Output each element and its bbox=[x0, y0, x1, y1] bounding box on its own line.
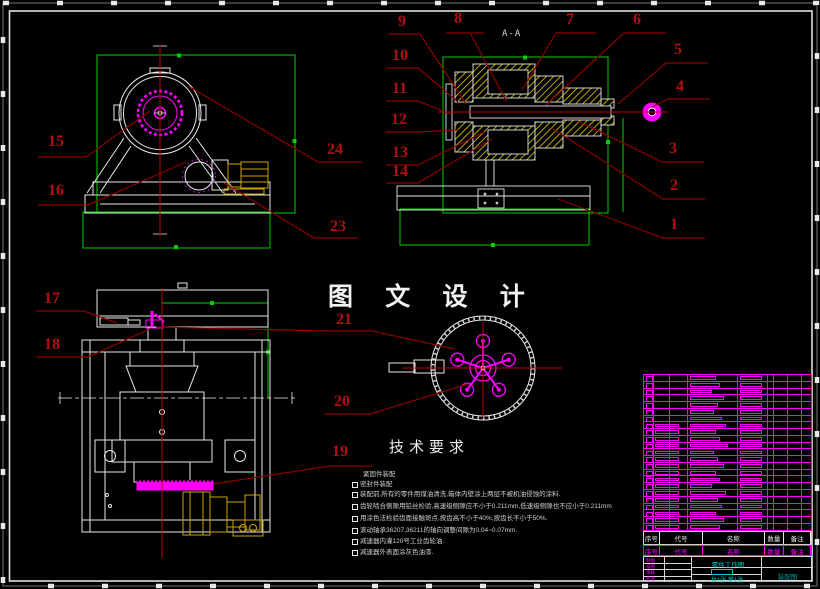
bom-row bbox=[644, 483, 811, 490]
green-boxes[interactable] bbox=[83, 54, 623, 399]
callout-2[interactable]: 2 bbox=[670, 178, 678, 194]
bom-row bbox=[644, 517, 811, 524]
bom-header-cell: 代号 bbox=[660, 532, 703, 544]
sheet-info: 共1张 第1张 bbox=[694, 575, 760, 584]
callout-23[interactable]: 23 bbox=[330, 219, 346, 235]
bom-header-cell: 名称 bbox=[703, 546, 764, 555]
bom-header-cell: 名称 bbox=[703, 532, 764, 544]
bom-row bbox=[644, 449, 811, 456]
front-view[interactable] bbox=[85, 46, 270, 234]
side-view[interactable] bbox=[58, 283, 295, 536]
tb-label-1: 制图 bbox=[646, 558, 655, 564]
callout-3[interactable]: 3 bbox=[669, 141, 677, 157]
bom-row bbox=[644, 389, 811, 396]
callout-9[interactable]: 9 bbox=[398, 14, 406, 30]
bom-row bbox=[644, 436, 811, 443]
bom-row bbox=[644, 504, 811, 511]
bom-table[interactable]: 序号代号名称数量备注 序号代号名称数量备注 制图 描图 审核 批准 零件工作图 … bbox=[643, 374, 812, 581]
tech-line: 齿轮啮合侧隙用铅丝检验,高速级侧隙应不小于0.211mm,低速级侧隙也不应小于0… bbox=[352, 503, 612, 511]
tb-label-3: 审核 bbox=[646, 570, 655, 576]
bom-grid bbox=[643, 374, 812, 531]
section-label: A-A bbox=[502, 29, 521, 39]
bom-row bbox=[644, 470, 811, 477]
bom-header-cell: 序号 bbox=[644, 532, 660, 544]
bom-row bbox=[644, 490, 811, 497]
callout-17[interactable]: 17 bbox=[44, 291, 60, 307]
callout-10[interactable]: 10 bbox=[392, 48, 408, 64]
callout-11[interactable]: 11 bbox=[392, 81, 407, 97]
callout-15[interactable]: 15 bbox=[48, 134, 64, 150]
bom-row bbox=[644, 510, 811, 517]
callout-19[interactable]: 19 bbox=[332, 444, 348, 460]
bom-row bbox=[644, 443, 811, 450]
bom-header-cell: 备注 bbox=[784, 532, 811, 544]
callout-16[interactable]: 16 bbox=[48, 183, 64, 199]
tb-label-2: 描图 bbox=[646, 564, 655, 570]
bom-header-magenta: 序号代号名称数量备注 bbox=[643, 545, 812, 556]
scale-box bbox=[711, 569, 733, 575]
bom-row bbox=[644, 416, 811, 423]
callout-8[interactable]: 8 bbox=[454, 11, 462, 27]
bom-header-cell: 序号 bbox=[644, 546, 660, 555]
callout-18[interactable]: 18 bbox=[44, 337, 60, 353]
tech-line: 减速器外表面涂灰色油漆. bbox=[352, 549, 433, 557]
callout-12[interactable]: 12 bbox=[391, 112, 407, 128]
title-block: 制图 描图 审核 批准 零件工作图 共1张 第1张 装配图 bbox=[643, 556, 812, 581]
callout-6[interactable]: 6 bbox=[633, 12, 641, 28]
bom-row bbox=[644, 422, 811, 429]
bom-header-cell: 数量 bbox=[765, 546, 785, 555]
callout-20[interactable]: 20 bbox=[334, 394, 350, 410]
callout-1[interactable]: 1 bbox=[670, 217, 678, 233]
callout-7[interactable]: 7 bbox=[566, 12, 574, 28]
bom-row bbox=[644, 476, 811, 483]
tech-requirements-title: 技术要求 bbox=[389, 436, 469, 457]
tech-line: 装配前,所有的零件用煤油清洗,箱体内壁涂上两层不被机油侵蚀的涂料. bbox=[352, 491, 560, 499]
tech-line: 减速器内灌120号工业齿轮油. bbox=[352, 538, 444, 546]
callout-14[interactable]: 14 bbox=[392, 164, 408, 180]
bom-row bbox=[644, 382, 811, 389]
callout-4[interactable]: 4 bbox=[676, 79, 684, 95]
bom-header-cell: 数量 bbox=[765, 532, 785, 544]
bom-header-white: 序号代号名称数量备注 bbox=[643, 531, 812, 545]
bom-row bbox=[644, 524, 811, 531]
callout-13[interactable]: 13 bbox=[392, 145, 408, 161]
bom-row bbox=[644, 456, 811, 463]
doc-title: 零件工作图 bbox=[696, 559, 760, 569]
bom-row bbox=[644, 375, 811, 382]
bom-row bbox=[644, 429, 811, 436]
bom-row bbox=[644, 463, 811, 470]
drawing-sheet[interactable]: 图 文 设 计 A-A 技术要求 紧固件装配密封件装配装配前,所有的零件用煤油清… bbox=[0, 0, 820, 589]
tech-line: 紧固件装配 bbox=[352, 471, 396, 479]
tech-line: 滚动轴承36207,36211的轴向调整间隙为0.04~0.07mm. bbox=[352, 527, 517, 535]
callout-21[interactable]: 21 bbox=[336, 312, 352, 328]
bom-header-cell: 代号 bbox=[660, 546, 703, 555]
tech-line: 密封件装配 bbox=[352, 481, 393, 489]
bom-row bbox=[644, 395, 811, 402]
drawing-type: 装配图 bbox=[764, 571, 811, 581]
bom-row bbox=[644, 409, 811, 416]
main-title: 图 文 设 计 bbox=[328, 277, 538, 313]
callout-5[interactable]: 5 bbox=[674, 42, 682, 58]
tech-line: 用涂色法检验齿面接触斑点,按齿高不小于40%,按齿长不小于50%. bbox=[352, 515, 547, 523]
bom-header-cell: 备注 bbox=[784, 546, 811, 555]
bom-row bbox=[644, 497, 811, 504]
callout-24[interactable]: 24 bbox=[327, 142, 343, 158]
section-view[interactable] bbox=[397, 64, 662, 210]
bom-row bbox=[644, 402, 811, 409]
tb-label-4: 批准 bbox=[646, 576, 655, 582]
